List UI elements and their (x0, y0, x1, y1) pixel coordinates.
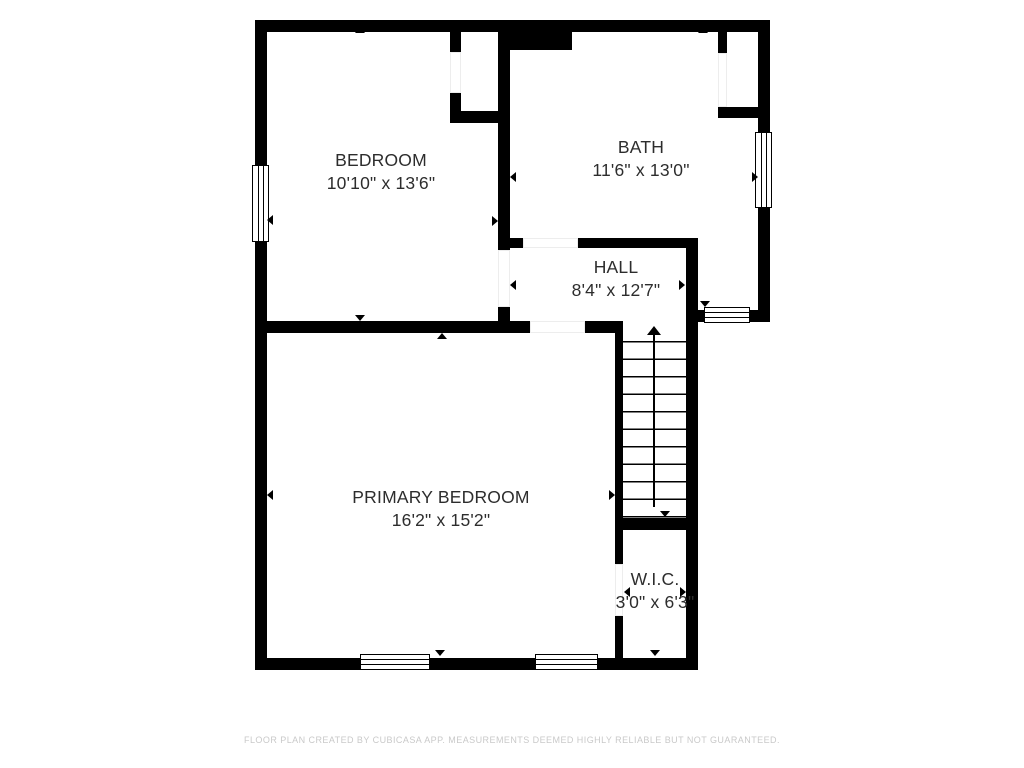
room-dimensions: 10'10" x 13'6" (261, 172, 501, 195)
room-dimensions: 11'6" x 13'0" (521, 159, 761, 182)
door-hall-primary (530, 321, 585, 333)
wall-bedroom-primary-divider (255, 321, 530, 333)
dimension-arrow-icon (492, 216, 498, 226)
wall-bath-closet (718, 20, 727, 53)
dimension-arrow-icon (267, 215, 273, 225)
dimension-arrow-icon (510, 172, 516, 182)
room-label-hall: HALL 8'4" x 12'7" (496, 256, 736, 302)
wall-stairs-left (615, 321, 623, 530)
stairs-direction-line (653, 334, 655, 507)
room-label-bath: BATH 11'6" x 13'0" (521, 136, 761, 182)
room-label-primary-bedroom: PRIMARY BEDROOM 16'2" x 15'2" (301, 486, 581, 532)
wall-bottom (255, 658, 698, 670)
window-icon (535, 654, 598, 670)
room-name: HALL (496, 256, 736, 279)
dimension-arrow-icon (698, 27, 708, 33)
wall-left (255, 20, 267, 670)
footer-disclaimer: FLOOR PLAN CREATED BY CUBICASA APP. MEAS… (0, 735, 1024, 745)
door-bath-closet (718, 53, 727, 107)
dimension-arrow-icon (609, 490, 615, 500)
door-bedroom-niche (450, 52, 461, 93)
room-dimensions: 3'0" x 6'3" (595, 591, 715, 614)
wall-bedroom-niche-side (450, 111, 503, 123)
room-dimensions: 16'2" x 15'2" (301, 509, 581, 532)
door-bath-hall (523, 238, 578, 248)
room-name: PRIMARY BEDROOM (301, 486, 581, 509)
wall-bedroom-niche-top (450, 20, 461, 52)
room-name: BEDROOM (261, 149, 501, 172)
dimension-arrow-icon (435, 650, 445, 656)
room-name: W.I.C. (595, 568, 715, 591)
dimension-arrow-icon (650, 523, 660, 529)
dimension-arrow-icon (437, 333, 447, 339)
dimension-arrow-icon (355, 27, 365, 33)
dimension-arrow-icon (658, 242, 668, 248)
floor-plan: BEDROOM 10'10" x 13'6" BATH 11'6" x 13'0… (0, 0, 1024, 768)
wall-wic-left-bottom (615, 616, 623, 660)
dimension-arrow-icon (650, 650, 660, 656)
wall-wic-left-top (615, 530, 623, 564)
window-icon (704, 307, 750, 323)
wall-bath-closet-bottom (718, 107, 758, 118)
window-icon (360, 654, 430, 670)
dimension-arrow-icon (355, 315, 365, 321)
stairs-up-arrow-icon (647, 326, 661, 335)
wall-bath-hall-stub (510, 238, 523, 248)
room-label-bedroom: BEDROOM 10'10" x 13'6" (261, 149, 501, 195)
room-name: BATH (521, 136, 761, 159)
room-dimensions: 8'4" x 12'7" (496, 279, 736, 302)
wall-bath-hall (578, 238, 697, 248)
dimension-arrow-icon (660, 511, 670, 517)
wall-chimney-block (498, 20, 572, 50)
room-label-wic: W.I.C. 3'0" x 6'3" (595, 568, 715, 614)
wall-bedroom-bath-divider (498, 20, 510, 250)
dimension-arrow-icon (267, 490, 273, 500)
